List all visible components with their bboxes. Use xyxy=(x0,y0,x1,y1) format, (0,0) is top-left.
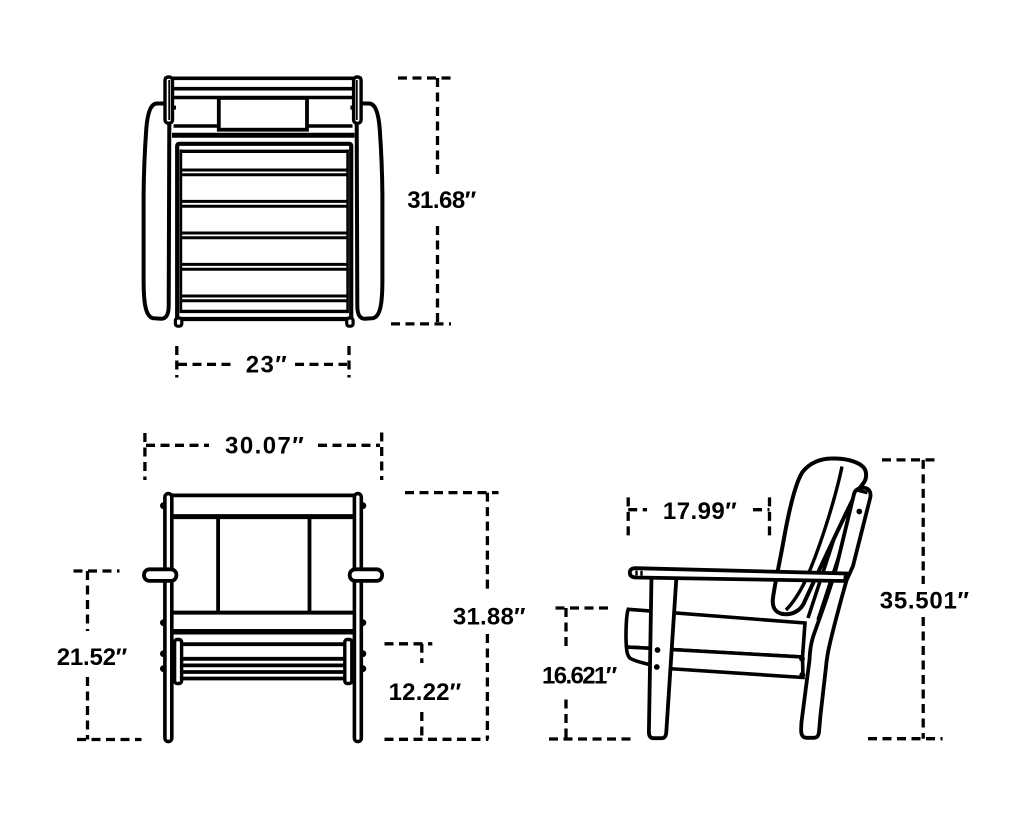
svg-text:35.501″: 35.501″ xyxy=(880,588,970,615)
svg-text:31.88″: 31.88″ xyxy=(453,603,526,630)
svg-text:21.52″: 21.52″ xyxy=(57,644,128,671)
svg-text:12.22″: 12.22″ xyxy=(389,679,462,706)
svg-text:30.07″: 30.07″ xyxy=(225,432,304,459)
svg-text:31.68″: 31.68″ xyxy=(407,187,477,214)
svg-text:16.621″: 16.621″ xyxy=(542,662,618,689)
svg-text:17.99″: 17.99″ xyxy=(663,498,737,525)
svg-text:23″: 23″ xyxy=(246,351,288,378)
